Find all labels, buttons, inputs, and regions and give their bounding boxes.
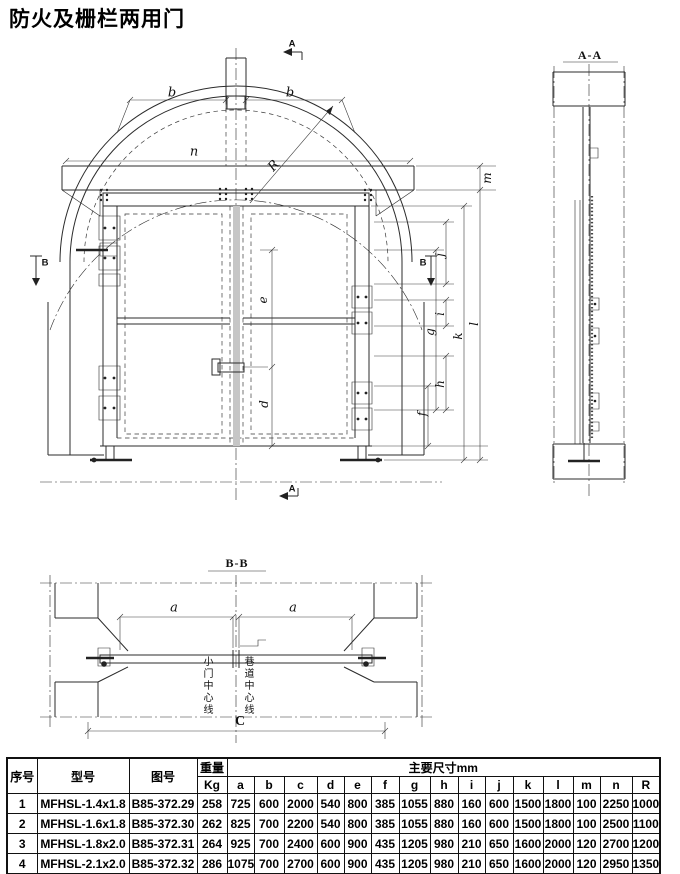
cell-dim: 385 [371,794,399,814]
drawing-sheet: 防火及栅栏两用门 [0,0,680,874]
col-header-k: k [513,777,543,794]
cell-dim: 2700 [284,854,317,874]
col-header-model: 型号 [37,758,129,794]
cell-dim: 160 [458,794,485,814]
cell-dim: 100 [573,814,600,834]
cell-dim: 700 [254,834,284,854]
col-header-index: 序号 [7,758,37,794]
col-header-d: d [317,777,344,794]
cell-dim: 1600 [513,834,543,854]
cell-dim: 120 [573,854,600,874]
cell-dim: 1500 [513,814,543,834]
cell-weight: 264 [197,834,227,854]
cell-index: 3 [7,834,37,854]
cell-dim: 100 [573,794,600,814]
bb-right-wall [344,583,417,717]
col-header-drawing-no: 图号 [129,758,197,794]
cell-weight: 258 [197,794,227,814]
center-mullion [233,206,240,446]
cell-dim: 900 [344,834,371,854]
cell-dim: 2400 [284,834,317,854]
cell-dim: 1800 [543,794,573,814]
col-header-c: c [284,777,317,794]
cell-dim: 2000 [543,834,573,854]
cell-dim: 725 [227,794,254,814]
cell-drawing-no: B85-372.29 [129,794,197,814]
cell-dim: 1800 [543,814,573,834]
section-label-a-top: A [289,39,296,49]
table-row: 4 MFHSL-2.1x2.0 B85-372.32 286 1075 700 … [7,854,660,874]
section-marker-b-right [425,256,437,286]
cell-dim: 1200 [632,834,660,854]
cell-weight: 286 [197,854,227,874]
cell-dim: 540 [317,794,344,814]
dim-label-m: m [481,172,493,183]
spec-table: 序号 型号 图号 重量 主要尺寸mm Kg a b c d e f g h i … [6,757,661,874]
dim-label-f: f [416,412,428,416]
cell-dim: 600 [485,814,513,834]
dim-label-i: i [434,312,446,316]
cell-dim: 120 [573,834,600,854]
col-header-a: a [227,777,254,794]
cell-dim: 160 [458,814,485,834]
bb-latch [240,640,266,646]
cell-dim: 2200 [284,814,317,834]
cell-dim: 1205 [399,834,430,854]
cell-dim: 925 [227,834,254,854]
section-label-b-left: B [42,258,49,268]
cell-dim: 210 [458,854,485,874]
cell-dim: 700 [254,814,284,834]
cell-dim: 540 [317,814,344,834]
bb-left-wall [55,583,128,717]
cell-index: 2 [7,814,37,834]
dim-R-leader [250,106,333,203]
cell-model: MFHSL-1.8x2.0 [37,834,129,854]
dim-n-line [63,158,413,164]
col-header-main-dims: 主要尺寸mm [227,758,660,777]
cell-drawing-no: B85-372.31 [129,834,197,854]
dim-label-C: C [235,715,245,729]
cell-dim: 2950 [600,854,632,874]
front-view [30,48,496,500]
cell-model: MFHSL-1.6x1.8 [37,814,129,834]
cell-dim: 880 [430,794,458,814]
cell-dim: 2500 [600,814,632,834]
col-header-j: j [485,777,513,794]
table-row: 2 MFHSL-1.6x1.8 B85-372.30 262 825 700 2… [7,814,660,834]
dim-label-j: j [434,253,446,257]
cell-dim: 650 [485,854,513,874]
cell-dim: 2000 [284,794,317,814]
cell-dim: 600 [317,834,344,854]
tunnel-centerline-label: 巷道中心线 [242,656,252,716]
cell-dim: 1075 [227,854,254,874]
col-header-f: f [371,777,399,794]
dim-label-a-left: a [170,602,178,615]
dim-label-b-left: b [168,87,176,100]
cell-weight: 262 [197,814,227,834]
table-row: 3 MFHSL-1.8x2.0 B85-372.31 264 925 700 2… [7,834,660,854]
cell-dim: 385 [371,814,399,834]
cell-dim: 1055 [399,794,430,814]
cell-dim: 650 [485,834,513,854]
col-header-l: l [543,777,573,794]
section-label-a-bottom: A [289,484,296,494]
cell-dim: 1205 [399,854,430,874]
dim-label-k: k [452,332,464,339]
dim-label-l: l [468,322,480,326]
cell-dim: 600 [254,794,284,814]
col-header-b: b [254,777,284,794]
cell-dim: 800 [344,794,371,814]
cell-index: 1 [7,794,37,814]
cell-dim: 1350 [632,854,660,874]
section-marker-b-left [30,256,42,286]
cell-dim: 600 [317,854,344,874]
cell-index: 4 [7,854,37,874]
dim-label-a-right: a [289,602,297,615]
plan-view-title: B-B [225,557,248,569]
section-marker-a-top [283,48,302,60]
cell-dim: 880 [430,814,458,834]
cell-dim: 1600 [513,854,543,874]
col-header-weight-unit: Kg [197,777,227,794]
col-header-n: n [600,777,632,794]
col-header-g: g [399,777,430,794]
dim-label-b-right: b [286,87,294,100]
cell-dim: 800 [344,814,371,834]
dim-label-g: g [424,328,436,336]
cell-dim: 2700 [600,834,632,854]
cell-dim: 600 [485,794,513,814]
aa-open-leaf [575,200,580,444]
side-view-title: A-A [578,49,602,61]
cell-drawing-no: B85-372.32 [129,854,197,874]
dim-label-n: n [190,146,198,159]
cell-dim: 700 [254,854,284,874]
cell-dim: 1100 [632,814,660,834]
cell-dim: 825 [227,814,254,834]
col-header-m: m [573,777,600,794]
cell-dim: 435 [371,834,399,854]
dim-label-e: e [257,296,269,303]
col-header-i: i [458,777,485,794]
cell-model: MFHSL-1.4x1.8 [37,794,129,814]
cell-dim: 1055 [399,814,430,834]
cell-dim: 900 [344,854,371,874]
table-header-row-1: 序号 型号 图号 重量 主要尺寸mm [7,758,660,777]
small-door-centerline-label: 小门中心线 [201,656,211,716]
cell-dim: 210 [458,834,485,854]
cell-dim: 1000 [632,794,660,814]
cell-dim: 1500 [513,794,543,814]
technical-drawing [0,0,680,755]
col-header-e: e [344,777,371,794]
section-label-b-right: B [420,258,427,268]
lintel-beam [62,166,414,190]
dim-label-h: h [434,380,446,388]
aa-wall-lines [554,64,624,498]
side-section-view [553,62,625,498]
table-row: 1 MFHSL-1.4x1.8 B85-372.29 258 725 600 2… [7,794,660,814]
cell-dim: 2250 [600,794,632,814]
cell-dim: 980 [430,834,458,854]
cell-model: MFHSL-2.1x2.0 [37,854,129,874]
col-header-weight: 重量 [197,758,227,777]
cell-drawing-no: B85-372.30 [129,814,197,834]
dim-label-d: d [258,400,270,408]
col-header-h: h [430,777,458,794]
cell-dim: 435 [371,854,399,874]
dim-e-d-line [260,247,278,449]
col-header-R: R [632,777,660,794]
cell-dim: 980 [430,854,458,874]
cell-dim: 2000 [543,854,573,874]
